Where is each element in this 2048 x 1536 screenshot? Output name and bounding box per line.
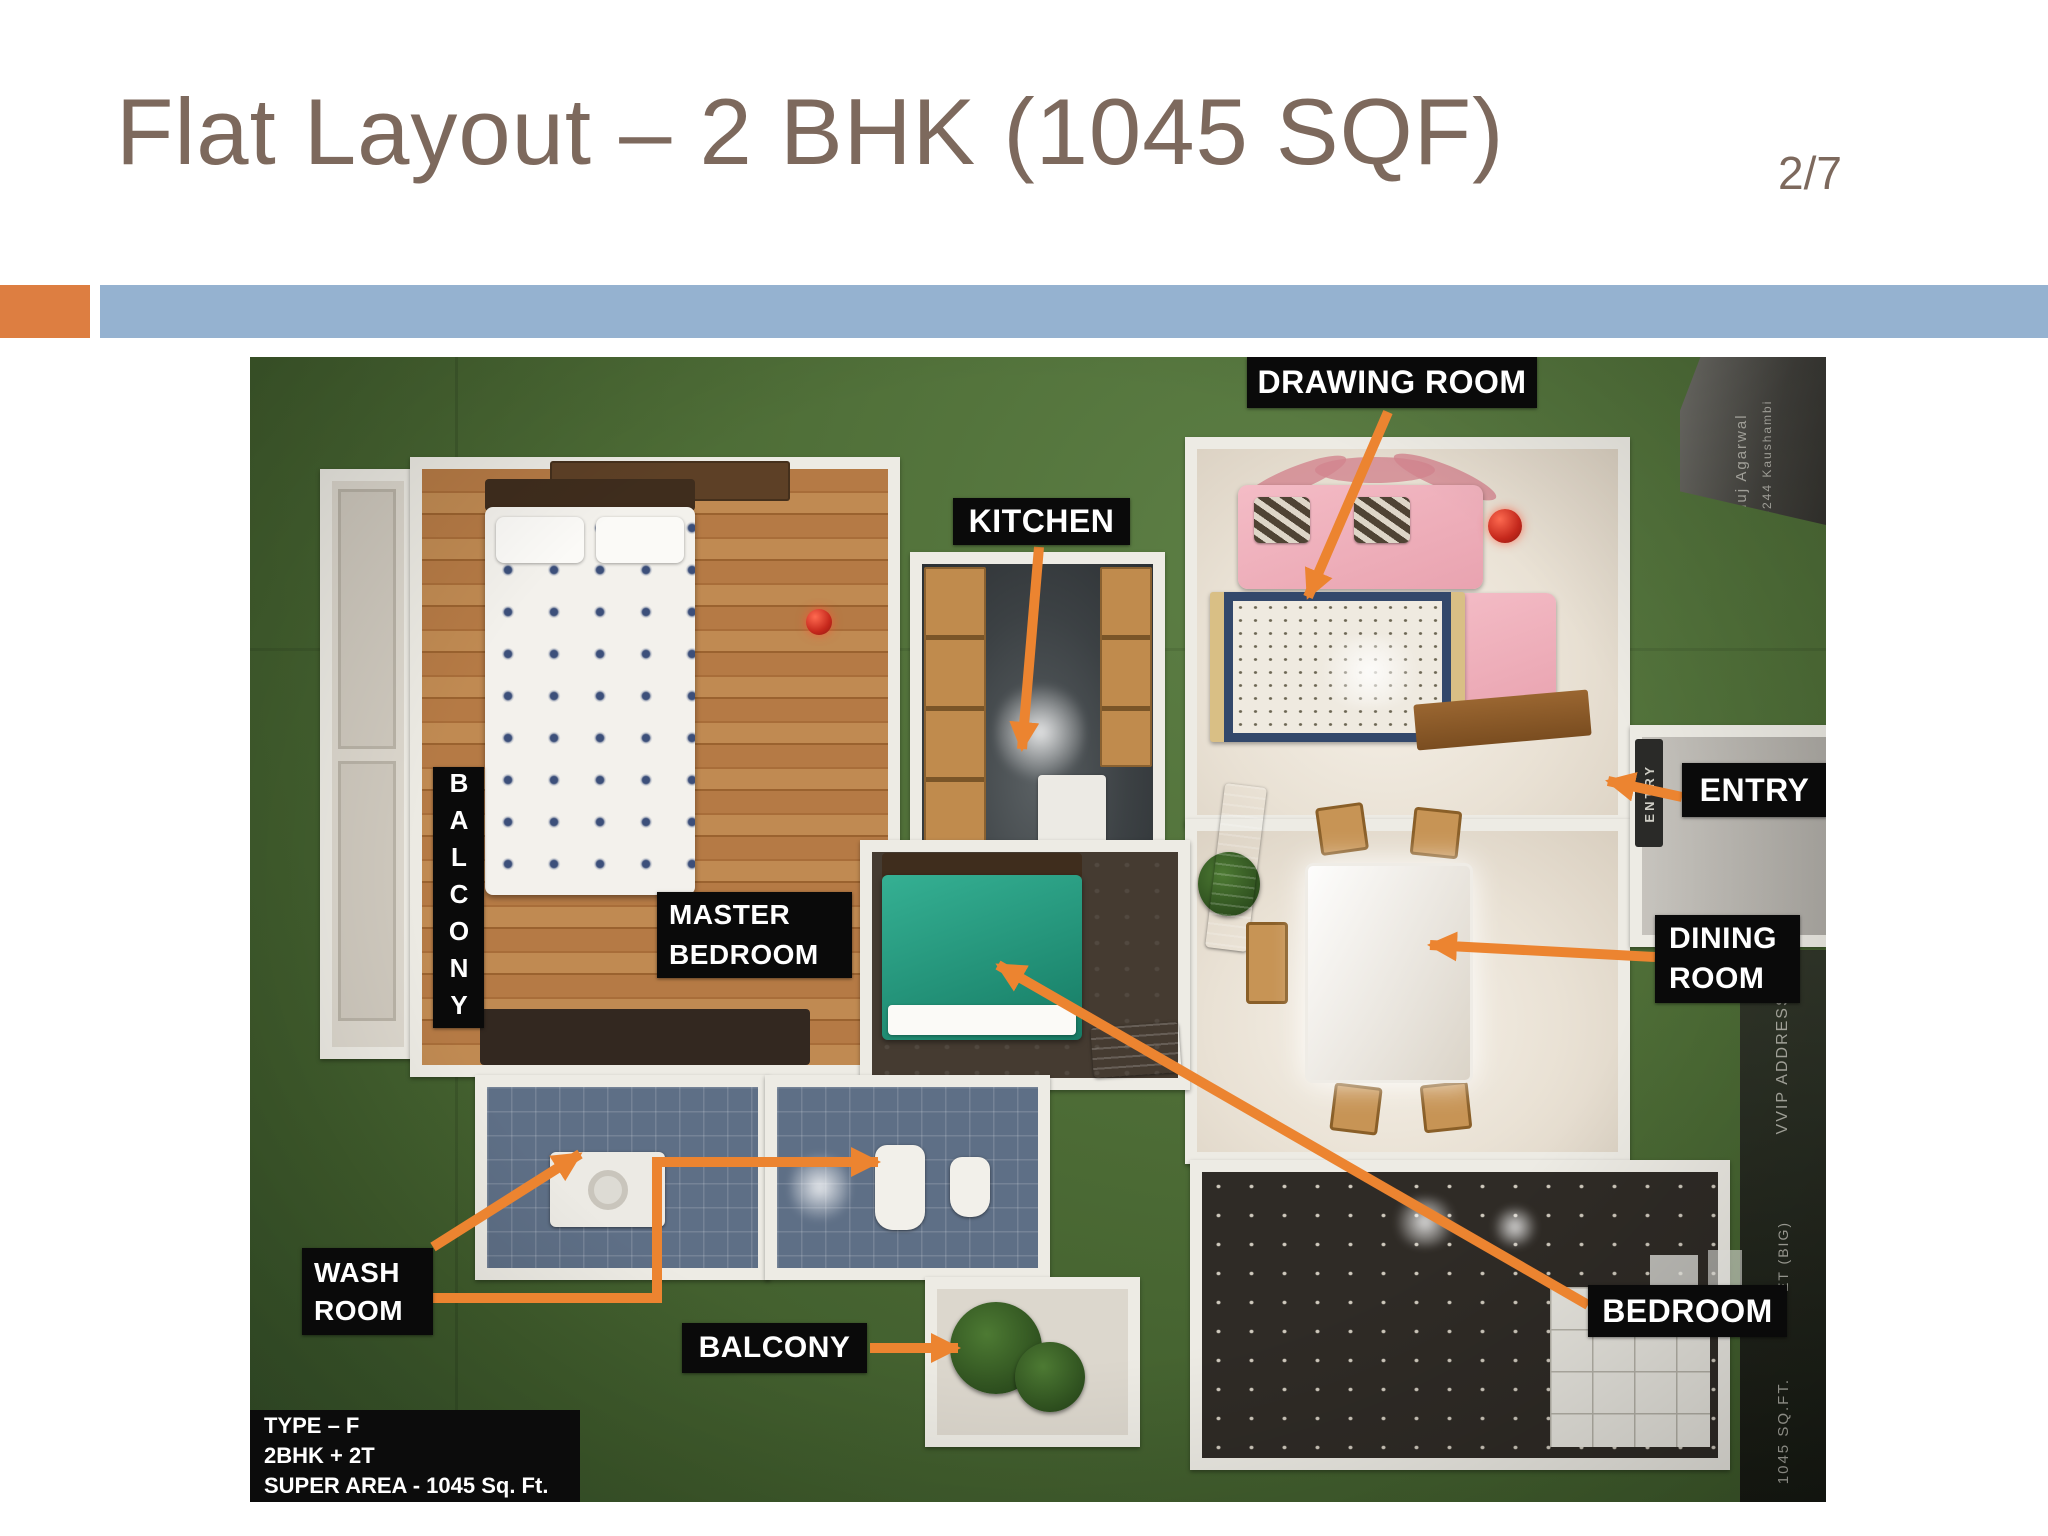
red-floor-lamp (1488, 509, 1522, 543)
label-text: KITCHEN (969, 503, 1115, 540)
right-edge-band: VVIP ADDRESSES ET (BIG) 1045 SQ.FT. (1740, 950, 1826, 1502)
balcony-door (338, 761, 396, 1021)
label-balcony-left: BALCONY (433, 767, 484, 1028)
balcony-left-room (320, 469, 416, 1059)
corner-plaque-text: Anuj Agarwal (1733, 363, 1750, 525)
type-info-box: TYPE – F 2BHK + 2T SUPER AREA - 1045 Sq.… (250, 1410, 580, 1502)
balcony-plant (1015, 1342, 1085, 1412)
model-sign-plaque (1090, 1022, 1181, 1078)
label-text: ENTRY (1700, 772, 1810, 809)
light-reflection (1390, 1197, 1460, 1247)
label-master-bedroom: MASTER BEDROOM (657, 892, 852, 978)
entry-wall-sticker: ENTRY (1635, 739, 1663, 847)
red-table-lamp (806, 609, 832, 635)
label-text: MASTER (669, 895, 790, 935)
info-line: SUPER AREA - 1045 Sq. Ft. (264, 1473, 566, 1499)
dining-chair (1315, 802, 1369, 856)
label-kitchen: KITCHEN (953, 498, 1130, 545)
label-text: DINING (1669, 919, 1777, 959)
label-text: ROOM (314, 1292, 403, 1330)
pillow (496, 517, 584, 563)
page-title: Flat Layout – 2 BHK (1045 SQF) (116, 78, 1816, 186)
accent-bar-orange (0, 285, 90, 338)
label-text: BEDROOM (1602, 1293, 1773, 1330)
light-reflection (1310, 637, 1430, 707)
label-text: BALCONY (443, 768, 474, 1027)
dining-table (1305, 863, 1473, 1083)
balcony-door (338, 489, 396, 749)
kitchen-cabinet-right (1100, 567, 1152, 767)
slide: Flat Layout – 2 BHK (1045 SQF) 2/7 (0, 0, 2048, 1536)
dining-chair (1329, 1082, 1382, 1135)
floor-plan-photo: ENTRY Anuj Agarwal A-244 Kaushambi V (250, 357, 1826, 1502)
info-line: 2BHK + 2T (264, 1443, 566, 1469)
striped-cushion (1254, 497, 1310, 543)
band-text-mid: ET (BIG) (1775, 1221, 1791, 1292)
light-reflection (995, 677, 1085, 787)
kitchen-cabinet-left (924, 567, 986, 847)
label-wash-room: WASH ROOM (302, 1248, 433, 1335)
label-bedroom: BEDROOM (1588, 1285, 1787, 1337)
info-line: TYPE – F (264, 1413, 566, 1439)
toilet (875, 1145, 925, 1230)
label-text: ROOM (1669, 959, 1764, 999)
label-dining-room: DINING ROOM (1655, 915, 1800, 1003)
master-bed (485, 507, 695, 895)
dresser (480, 1009, 810, 1065)
wash-basin (950, 1157, 990, 1217)
label-text: BALCONY (699, 1331, 851, 1365)
light-reflection (790, 1147, 850, 1227)
label-text: DRAWING ROOM (1257, 364, 1526, 401)
label-text: BEDROOM (669, 935, 819, 975)
bed2-sheet (888, 1005, 1076, 1035)
label-balcony-bottom: BALCONY (682, 1323, 867, 1373)
washing-machine (550, 1152, 665, 1227)
corner-plaque-text: A-244 Kaushambi (1760, 363, 1774, 525)
entry-sticker-text: ENTRY (1642, 764, 1657, 823)
light-reflection (1490, 1207, 1540, 1247)
label-drawing-room: DRAWING ROOM (1247, 357, 1537, 408)
label-text: WASH (314, 1254, 400, 1292)
label-entry: ENTRY (1682, 763, 1826, 817)
page-number: 2/7 (1778, 146, 1842, 200)
pillow (596, 517, 684, 563)
dining-chair (1246, 922, 1288, 1004)
corner-plaque: Anuj Agarwal A-244 Kaushambi (1680, 357, 1826, 525)
accent-bar-blue (100, 285, 2048, 338)
band-text-bottom: 1045 SQ.FT. (1775, 1378, 1792, 1484)
dining-chair (1410, 807, 1463, 860)
striped-cushion (1354, 497, 1410, 543)
dining-chair (1420, 1081, 1473, 1134)
